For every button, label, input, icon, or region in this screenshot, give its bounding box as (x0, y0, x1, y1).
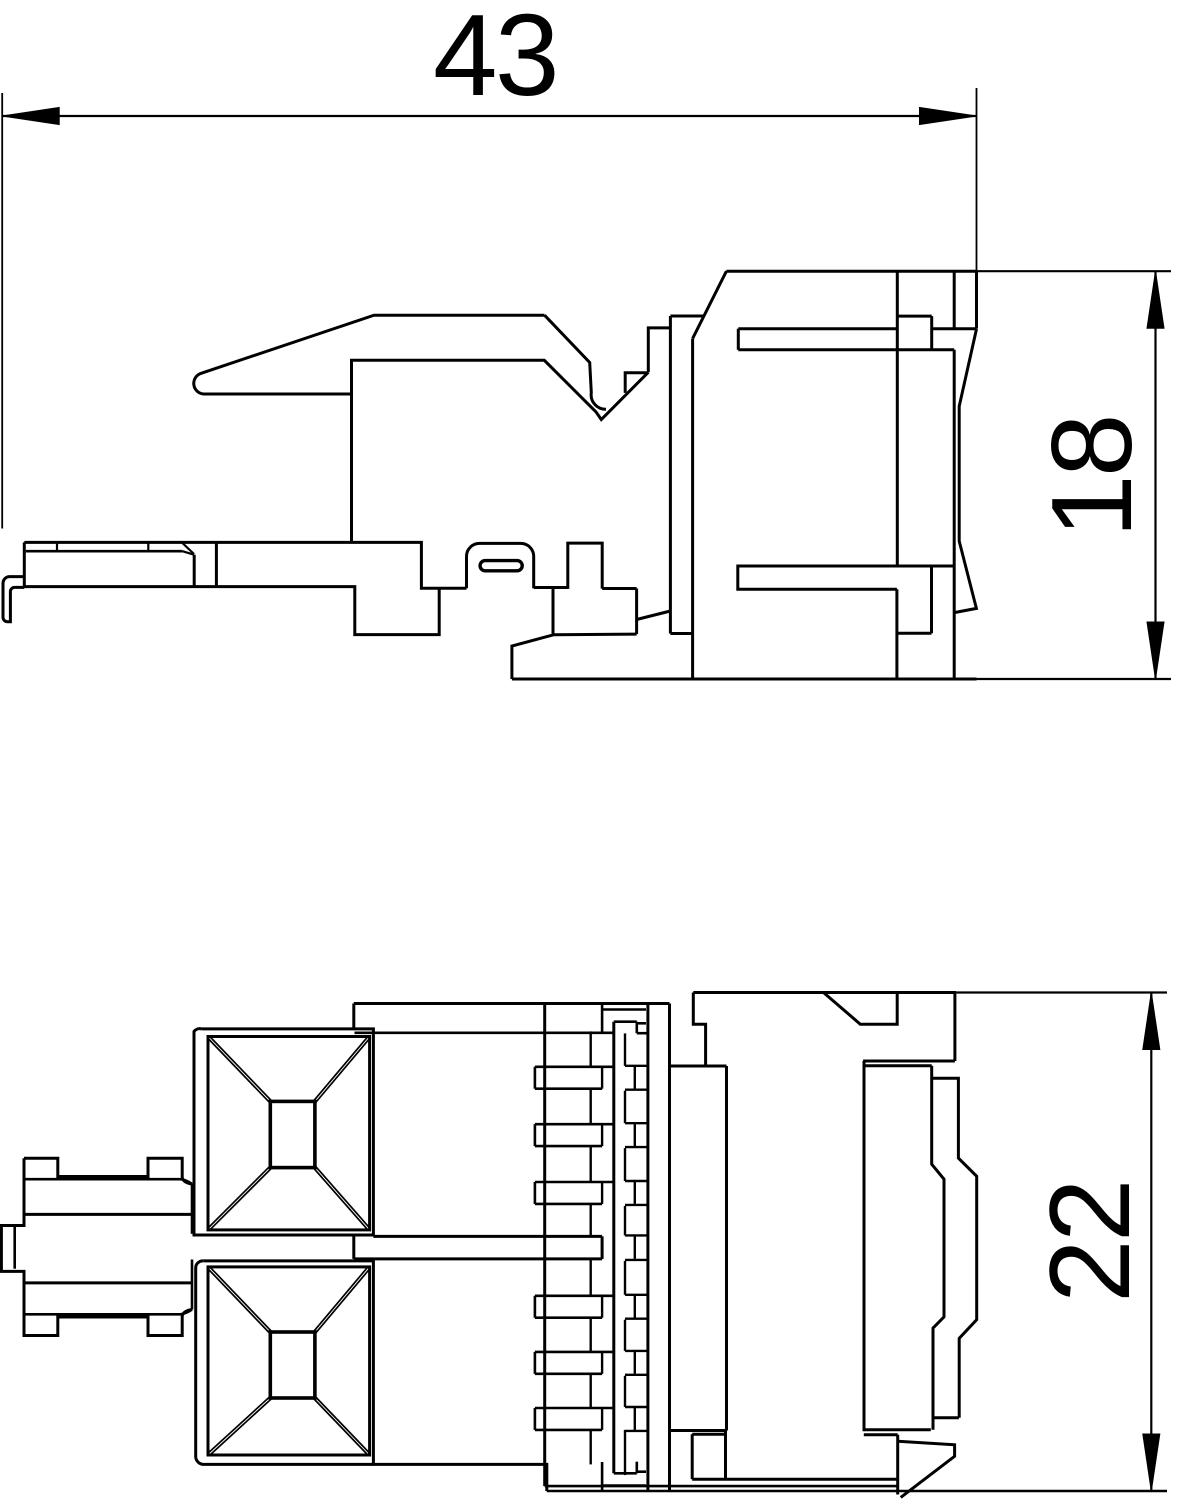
svg-text:43: 43 (433, 0, 557, 120)
svg-text:18: 18 (1029, 416, 1156, 538)
svg-text:22: 22 (1027, 1181, 1154, 1303)
